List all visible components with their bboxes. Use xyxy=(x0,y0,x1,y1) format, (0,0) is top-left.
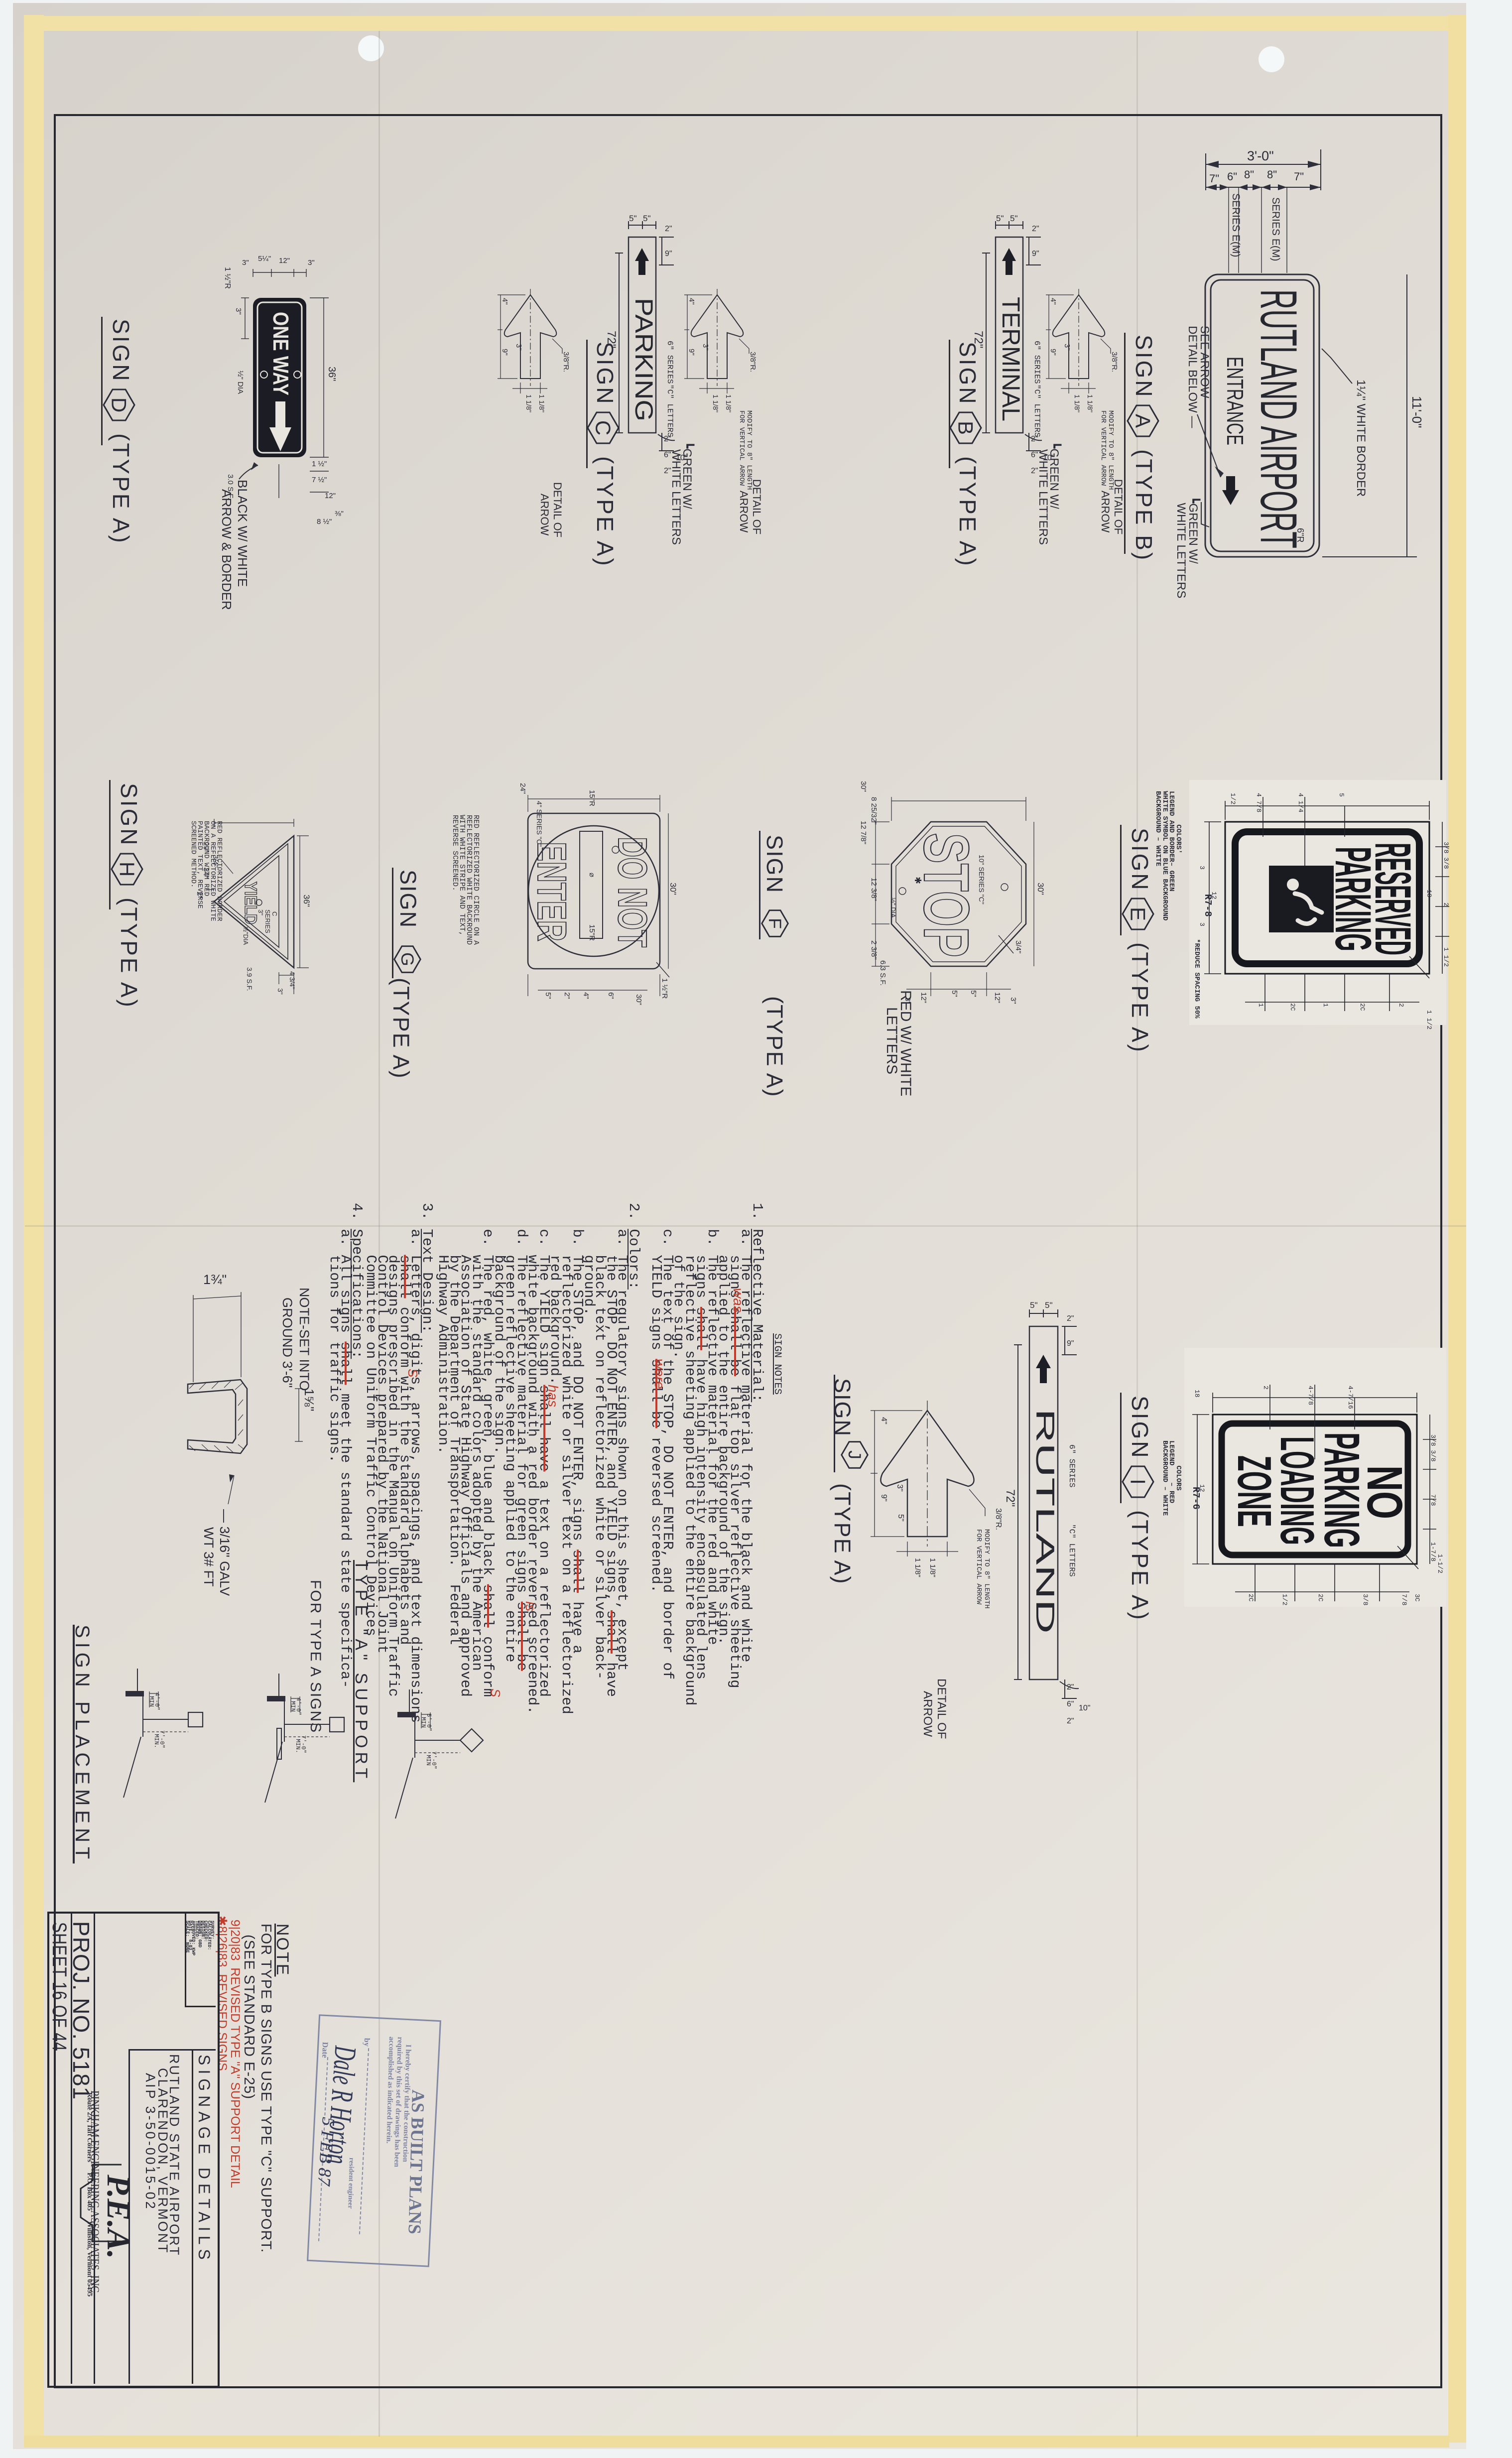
svg-text:I: I xyxy=(1127,1479,1150,1485)
svg-text:E: E xyxy=(1127,907,1150,921)
svg-text:P.E.A.: P.E.A. xyxy=(100,2174,136,2259)
svg-text:YIELD: YIELD xyxy=(241,882,260,924)
svg-text:ZONE: ZONE xyxy=(1228,1455,1281,1527)
svg-text:ONE WAY: ONE WAY xyxy=(268,312,293,395)
svg-text:D: D xyxy=(108,397,131,412)
svg-text:ENTRANCE: ENTRANCE xyxy=(1222,357,1248,445)
svg-text:J: J xyxy=(845,1450,865,1459)
svg-text:F: F xyxy=(765,918,785,929)
svg-text:G: G xyxy=(397,952,417,966)
svg-text:A: A xyxy=(1132,414,1155,428)
svg-text:TERMINAL: TERMINAL xyxy=(997,297,1025,421)
svg-text:C: C xyxy=(592,420,615,435)
svg-text:STOP: STOP xyxy=(910,833,982,957)
svg-text:B: B xyxy=(954,421,978,435)
svg-text:PARKING: PARKING xyxy=(630,298,658,421)
svg-text:RUTLAND AIRPORT: RUTLAND AIRPORT xyxy=(1250,289,1307,548)
svg-text:ENTER: ENTER xyxy=(529,842,574,941)
svg-text:DO NOT: DO NOT xyxy=(610,837,655,947)
svg-text:RUTLAND: RUTLAND xyxy=(1030,1409,1059,1634)
svg-text:H: H xyxy=(116,862,139,877)
svg-text:PARKING: PARKING xyxy=(1325,847,1382,951)
